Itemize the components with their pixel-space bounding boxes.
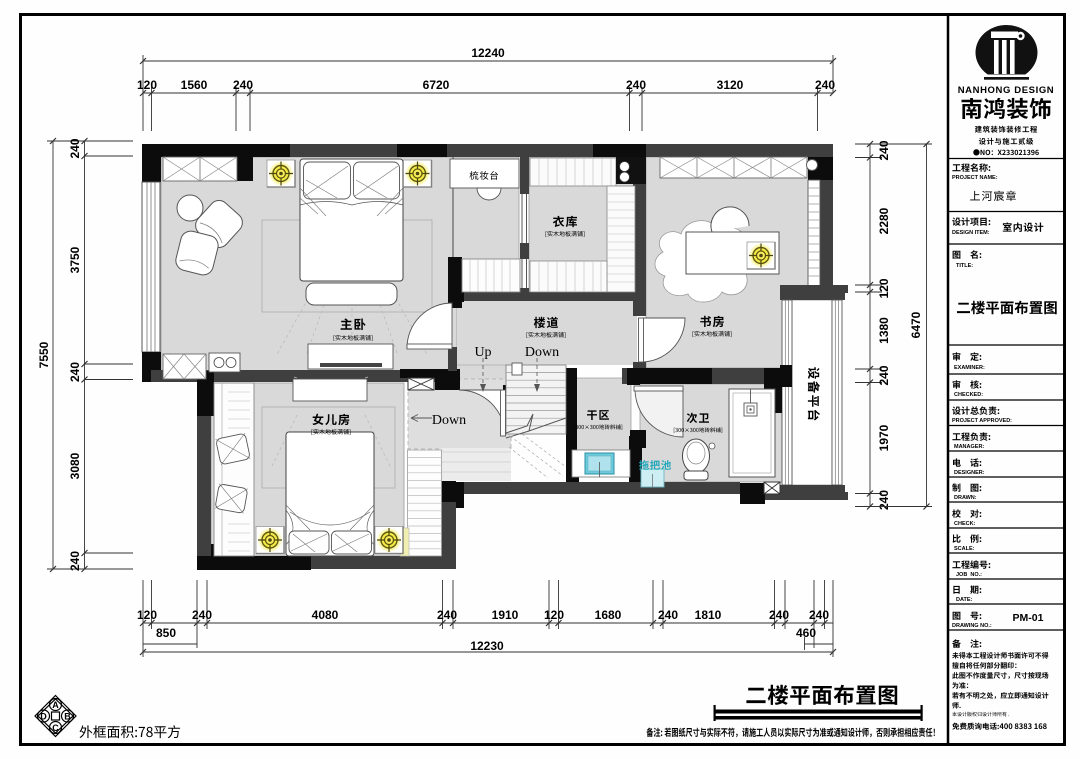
svg-text:3080: 3080: [68, 452, 82, 479]
svg-text:B: B: [64, 712, 71, 722]
svg-text:Down: Down: [525, 345, 559, 360]
svg-text:3750: 3750: [68, 246, 82, 273]
svg-text:SCALE:: SCALE:: [954, 546, 975, 552]
svg-text:240: 240: [658, 608, 678, 622]
svg-text:240: 240: [815, 78, 835, 92]
svg-text:3120: 3120: [717, 78, 744, 92]
svg-text:DATE:: DATE:: [956, 597, 973, 603]
svg-text:DRAWN:: DRAWN:: [954, 495, 977, 501]
svg-text:4080: 4080: [312, 608, 339, 622]
svg-text:EXAMINER:: EXAMINER:: [954, 365, 985, 371]
svg-text:JOB NO.:: JOB NO.:: [956, 572, 982, 578]
svg-text:12230: 12230: [470, 639, 504, 653]
svg-text:1810: 1810: [695, 608, 722, 622]
svg-text:240: 240: [877, 365, 891, 385]
svg-text:DRAWING NO.:: DRAWING NO.:: [952, 623, 992, 629]
svg-text:DESIGN ITEM:: DESIGN ITEM:: [952, 230, 990, 236]
svg-text:240: 240: [68, 362, 82, 382]
svg-text:7550: 7550: [37, 341, 51, 368]
svg-text:CHECKED:: CHECKED:: [954, 392, 983, 398]
svg-text:240: 240: [192, 608, 212, 622]
svg-text:MANAGER:: MANAGER:: [954, 444, 984, 450]
svg-text:NANHONG DESIGN: NANHONG DESIGN: [958, 85, 1055, 96]
svg-text:2280: 2280: [877, 207, 891, 234]
svg-text:1680: 1680: [595, 608, 622, 622]
svg-text:850: 850: [156, 626, 176, 640]
svg-text:240: 240: [233, 78, 253, 92]
svg-text:240: 240: [68, 138, 82, 158]
svg-text:240: 240: [437, 608, 457, 622]
svg-text:Up: Up: [474, 345, 491, 360]
svg-text:A: A: [52, 700, 59, 710]
svg-text:C: C: [52, 723, 59, 733]
svg-text:DESIGNER:: DESIGNER:: [954, 470, 985, 476]
svg-text:120: 120: [544, 608, 564, 622]
svg-text:460: 460: [796, 626, 816, 640]
svg-text:240: 240: [809, 608, 829, 622]
svg-text:1910: 1910: [492, 608, 519, 622]
svg-text:PROJECT NAME:: PROJECT NAME:: [952, 175, 998, 181]
svg-text:6720: 6720: [423, 78, 450, 92]
svg-text:D: D: [40, 712, 47, 722]
svg-text:240: 240: [626, 78, 646, 92]
svg-text:12240: 12240: [471, 46, 505, 60]
svg-text:240: 240: [769, 608, 789, 622]
svg-text:120: 120: [877, 278, 891, 298]
svg-text:240: 240: [68, 551, 82, 571]
svg-text:1380: 1380: [877, 317, 891, 344]
svg-text:CHECK:: CHECK:: [954, 521, 976, 527]
svg-text:6470: 6470: [909, 311, 923, 338]
svg-text:PM-01: PM-01: [1013, 612, 1044, 624]
svg-text:120: 120: [137, 78, 157, 92]
svg-text:240: 240: [877, 490, 891, 510]
svg-text:1970: 1970: [877, 424, 891, 451]
svg-text:TITLE:: TITLE:: [956, 263, 973, 269]
svg-text:Down: Down: [432, 413, 466, 428]
svg-text:240: 240: [877, 140, 891, 160]
svg-text:120: 120: [137, 608, 157, 622]
svg-text:1560: 1560: [181, 78, 208, 92]
svg-text:PROJECT APPROVED:: PROJECT APPROVED:: [952, 418, 1012, 424]
